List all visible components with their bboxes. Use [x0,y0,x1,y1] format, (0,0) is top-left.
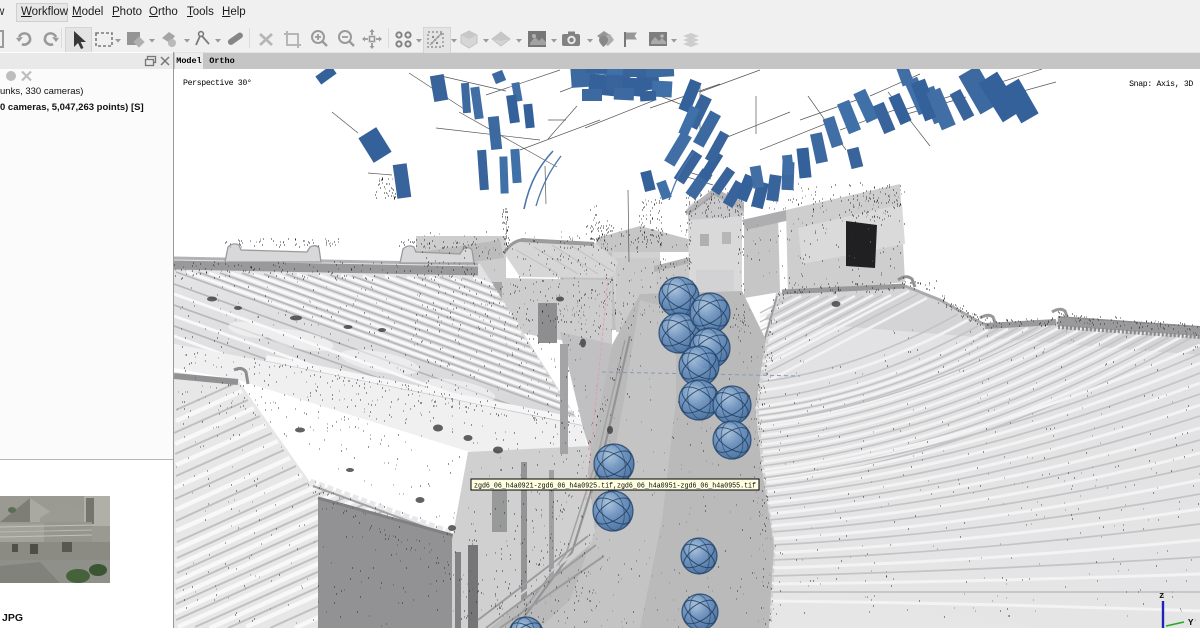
svg-text:Y: Y [1188,618,1194,628]
svg-text:Snap: Axis, 3D: Snap: Axis, 3D [1129,79,1193,89]
svg-text:Perspective 30°: Perspective 30° [183,78,251,88]
svg-text:z: z [1159,591,1164,601]
svg-text:zgd6_06_h4a0921-zgd6_06_h4a092: zgd6_06_h4a0921-zgd6_06_h4a0925.tif,zgd6… [474,483,756,491]
